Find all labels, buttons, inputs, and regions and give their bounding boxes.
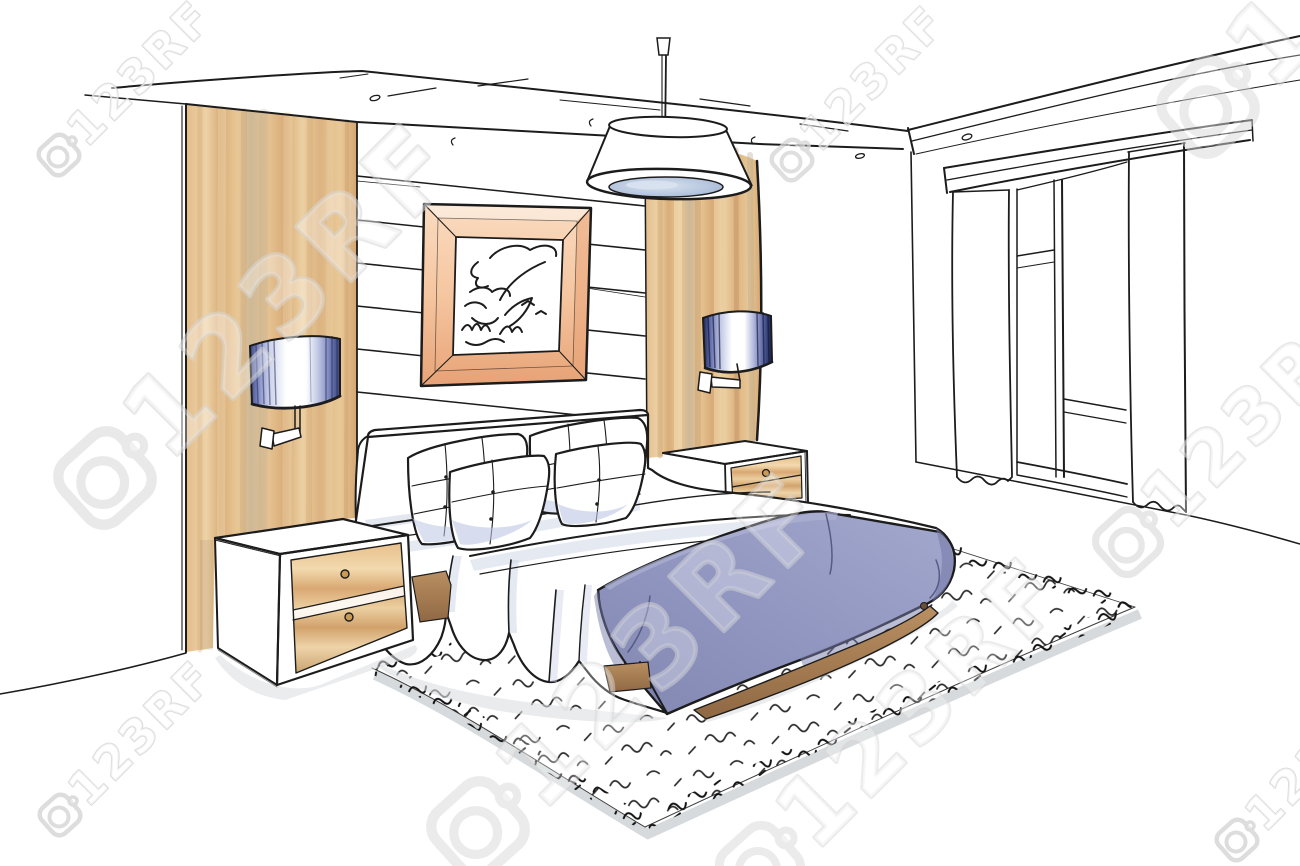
curtain-left xyxy=(952,190,1012,485)
wall-corner-line xyxy=(911,152,916,462)
sketch-canvas: 123RF xyxy=(0,0,1300,866)
bedroom-sketch-illustration: 123RF xyxy=(0,0,1300,866)
window-frame xyxy=(1017,162,1127,497)
pendant-lamp xyxy=(587,38,752,201)
framed-artwork xyxy=(421,204,591,386)
